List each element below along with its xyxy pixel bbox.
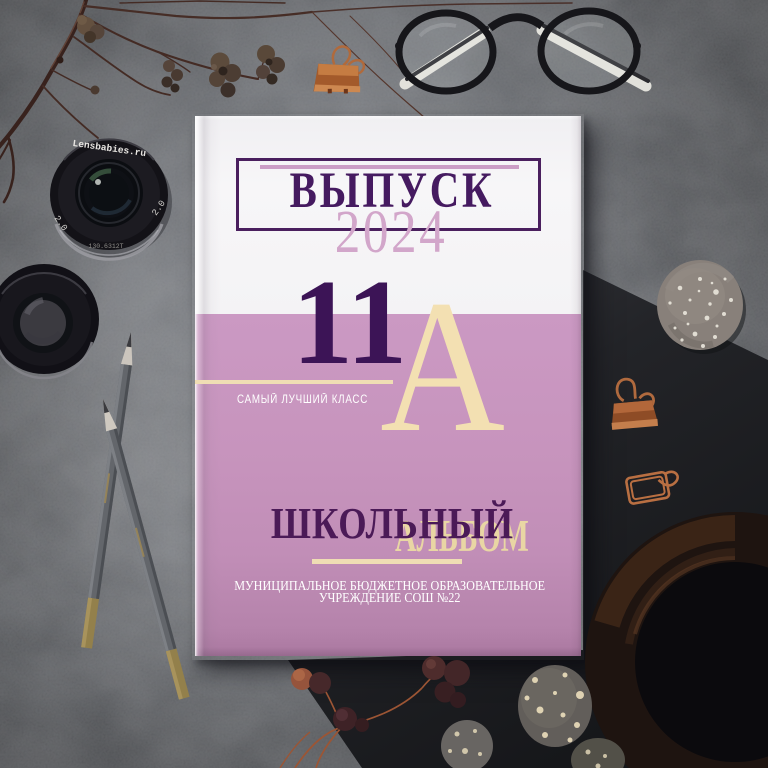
svg-text:130.6312T: 130.6312T [88,243,123,250]
